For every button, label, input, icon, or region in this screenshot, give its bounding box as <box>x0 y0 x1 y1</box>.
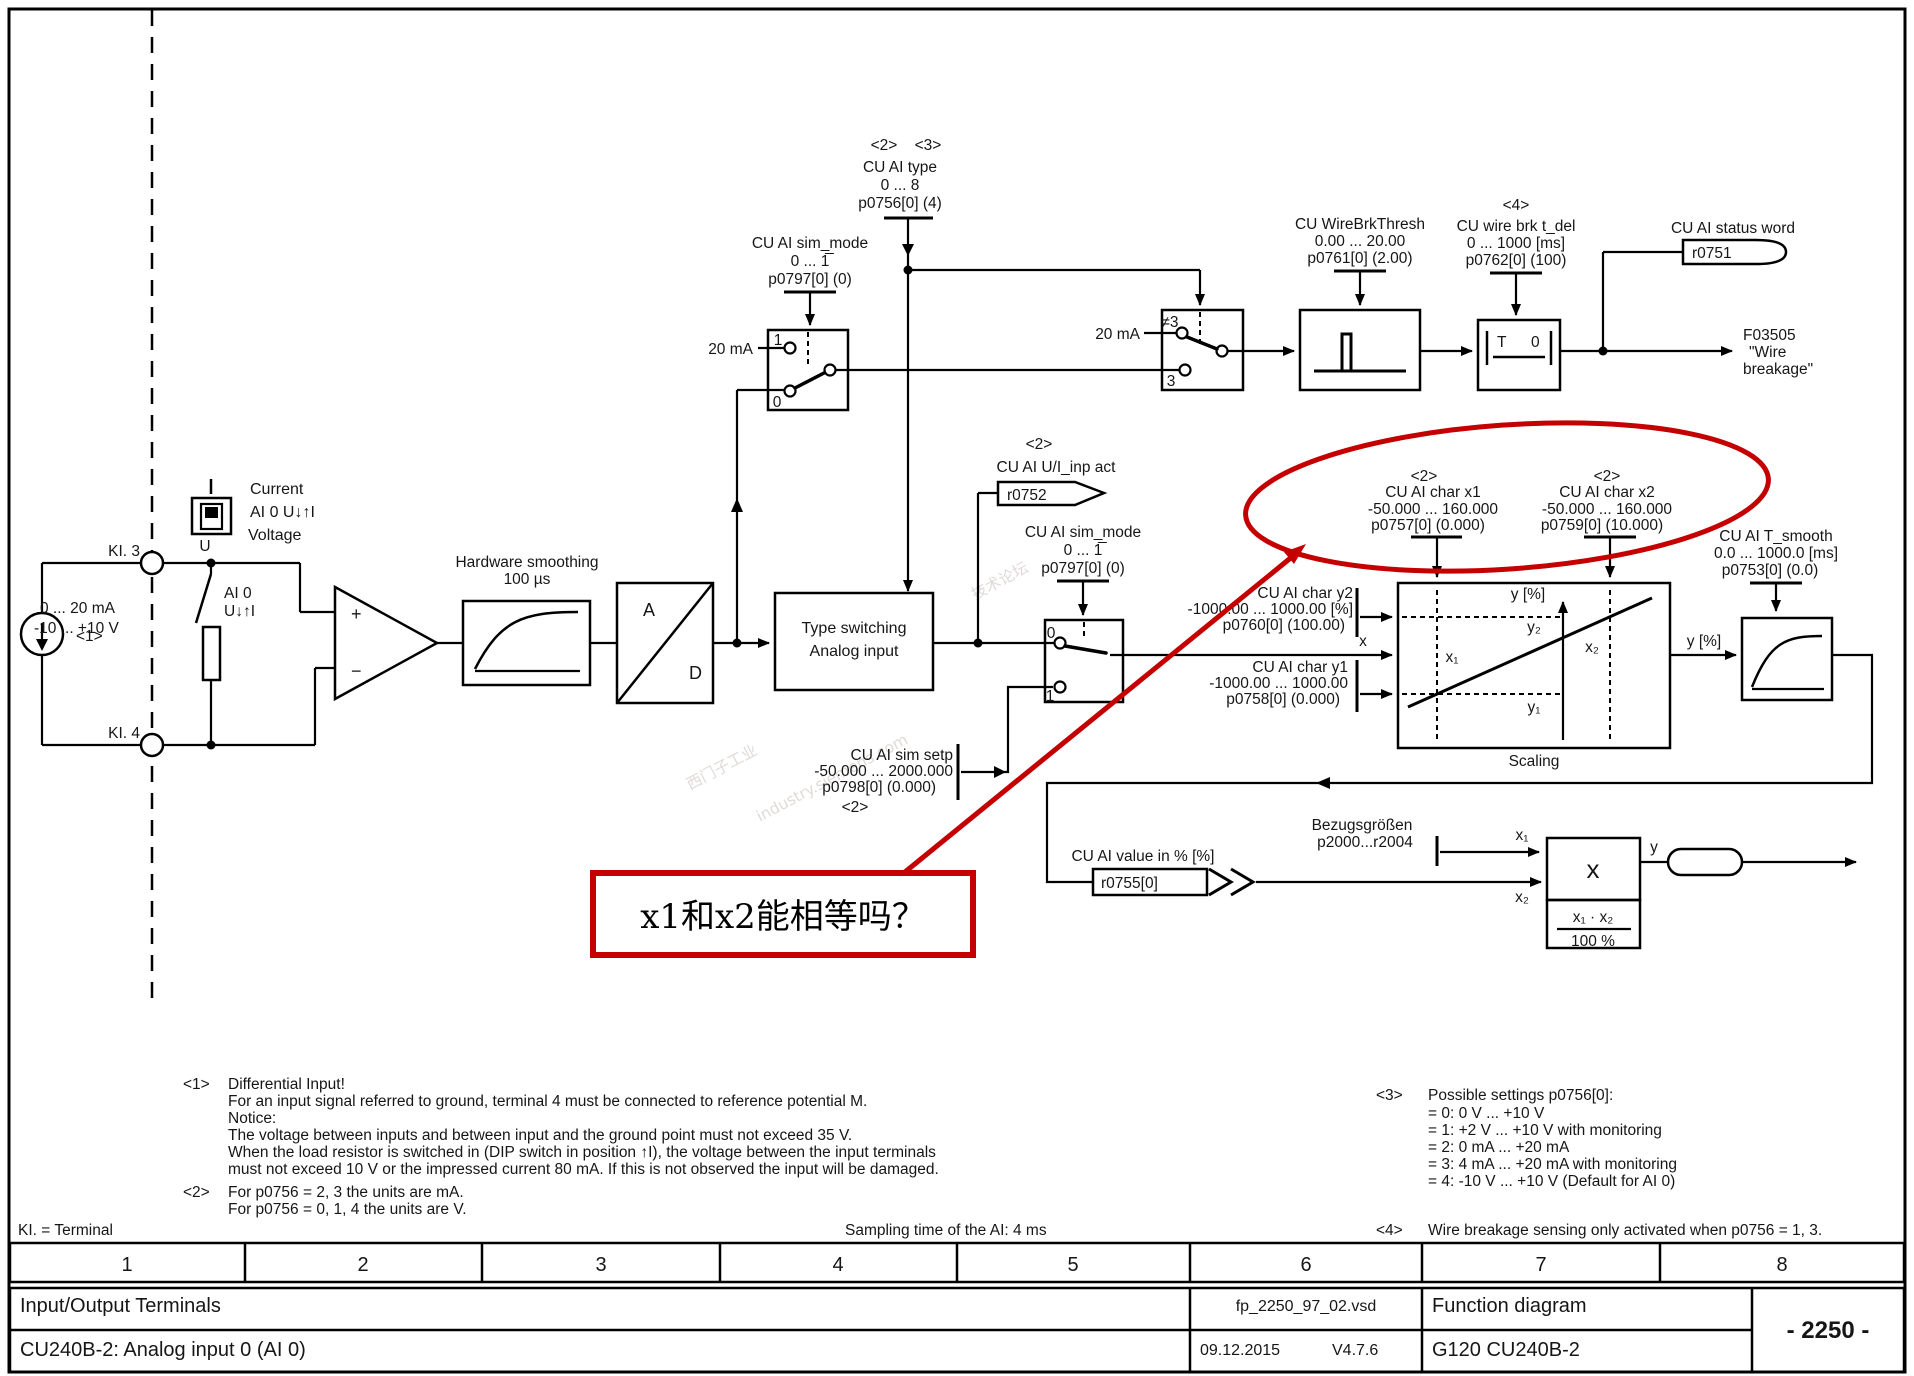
opamp-plus-label: + <box>351 604 362 624</box>
p0797b-name: CU AI sim_mode <box>1025 524 1141 541</box>
p0762-name: CU wire brk t_del <box>1457 218 1576 235</box>
switch-label-2: U↓↑I <box>224 603 255 620</box>
doc-title: Input/Output Terminals <box>20 1295 221 1317</box>
p0756-name: CU AI type <box>863 159 937 176</box>
load-switch-icon <box>196 574 211 623</box>
hardware-smoothing-block: Hardware smoothing 100 µs <box>455 554 617 685</box>
multiplier-x-label: x <box>1587 854 1600 884</box>
p0753-range: 0.0 ... 1000.0 [ms] <box>1714 545 1838 562</box>
fn1-line6: must not exceed 10 V or the impressed cu… <box>228 1161 939 1178</box>
file-name: fp_2250_97_02.vsd <box>1236 1298 1377 1315</box>
opamp-minus-label: − <box>351 661 362 681</box>
param-p0757: <2> CU AI char x1 -50.000 ... 160.000 p0… <box>1368 468 1499 577</box>
p0760-name: CU AI char y2 <box>1257 585 1353 602</box>
selector1-input1-label: 1 <box>774 332 783 349</box>
scaling-x-input-label: x <box>1359 633 1367 650</box>
p0762-value: p0762[0] (100) <box>1466 252 1567 269</box>
current-label: Current <box>250 481 304 498</box>
scaling-block: y [%] y₂ y₁ x₁ x₂ Scaling x <box>1359 583 1670 770</box>
simsel-0-label: 0 <box>1047 625 1056 642</box>
r0751-label: CU AI status word <box>1671 220 1795 237</box>
footnote-ref-4: <4> <box>1503 197 1530 214</box>
value-percent-path: CU AI value in % [%] r0755[0] <box>1047 655 1872 895</box>
highlight-ellipse <box>1241 407 1774 587</box>
tdel-0-label: 0 <box>1531 334 1540 351</box>
column-header-7: 7 <box>1535 1254 1546 1276</box>
switch-label-1: AI 0 <box>224 585 252 602</box>
fn3-line1: = 0: 0 V ... +10 V <box>1428 1105 1545 1122</box>
mult-x1-label: x₁ <box>1516 827 1529 844</box>
current-range-label: 0 ... 20 mA <box>40 600 116 617</box>
fn4-marker: <4> <box>1376 1222 1403 1239</box>
selector-label: AI 0 U↓↑I <box>250 504 315 521</box>
p0758-range: -1000.00 ... 1000.00 <box>1209 675 1348 692</box>
footnote-ref-2e: <2> <box>1594 468 1621 485</box>
fn1-line3: Notice: <box>228 1110 276 1127</box>
p0761-value: p0761[0] (2.00) <box>1307 250 1412 267</box>
p0797b-value: p0797[0] (0) <box>1041 560 1125 577</box>
output-y-label: y <box>1650 839 1658 856</box>
r0751-id: r0751 <box>1692 245 1732 262</box>
hw-smoothing-label-1: Hardware smoothing <box>455 554 598 571</box>
p0757-name: CU AI char x1 <box>1385 484 1481 501</box>
column-header-3: 3 <box>595 1254 606 1276</box>
opamp-block: + − <box>335 587 463 699</box>
simsel-lever-icon <box>1065 646 1106 653</box>
fn3-marker: <3> <box>1376 1087 1403 1104</box>
fn1-line4: The voltage between inputs and between i… <box>228 1127 852 1144</box>
terminal-3-label: KI. 3 <box>108 543 140 560</box>
ad-d-label: D <box>689 663 702 683</box>
annotation-arrow <box>905 556 1293 872</box>
fn3-line2: = 1: +2 V ... +10 V with monitoring <box>1428 1122 1662 1139</box>
r0755-id: r0755[0] <box>1101 875 1158 892</box>
param-p0753-smoothing: CU AI T_smooth 0.0 ... 1000.0 [ms] p0753… <box>1670 528 1838 700</box>
column-header-2: 2 <box>357 1254 368 1276</box>
fn1-marker: <1> <box>183 1076 210 1093</box>
param-p0797-mid: CU AI sim_mode 0 ... 1̅ p0797[0] (0) <box>1025 524 1141 615</box>
dip-u-label: U <box>199 538 210 555</box>
title-block: 1 2 3 4 5 6 7 8 Input/Output Terminals f… <box>10 1243 1904 1372</box>
hw-smoothing-label-2: 100 µs <box>504 571 551 588</box>
sim-20ma-label: 20 mA <box>708 341 753 358</box>
doc-kind: Function diagram <box>1432 1295 1587 1317</box>
p0760-range: -1000.00 ... 1000.00 [%] <box>1188 601 1353 618</box>
p0758-value: p0758[0] (0.000) <box>1226 691 1340 708</box>
column-header-4: 4 <box>832 1254 843 1276</box>
doc-version: V4.7.6 <box>1332 1342 1378 1359</box>
p0756-value: p0756[0] (4) <box>858 195 942 212</box>
type-switching-label-1: Type switching <box>802 620 907 637</box>
function-diagram-page: 西门子工业 industry.siemens.com 技术论坛 U KI. 3 … <box>0 0 1914 1376</box>
voltage-range-label: -10 ... +10 V <box>34 620 120 637</box>
param-p0760: CU AI char y2 -1000.00 ... 1000.00 [%] p… <box>1188 585 1392 637</box>
param-p0756: <2> <3> CU AI type 0 ... 8 p0756[0] (4) <box>858 137 1200 591</box>
column-header-1: 1 <box>121 1254 132 1276</box>
param-p0761-threshold: CU WireBrkThresh 0.00 ... 20.00 p0761[0]… <box>1295 216 1472 390</box>
status-word-connector: CU AI status word r0751 F03505 "Wire bre… <box>1603 220 1813 378</box>
fault-text-1: "Wire <box>1749 344 1786 361</box>
watermark-text: 西门子工业 <box>683 741 760 793</box>
param-p0797-top: CU AI sim_mode 0 ... 1̅ p0797[0] (0) <box>752 235 868 325</box>
p0798-value: p0798[0] (0.000) <box>822 779 936 796</box>
fn2-line2: For p0756 = 0, 1, 4 the units are V. <box>228 1201 467 1218</box>
p0753-value: p0753[0] (0.0) <box>1722 562 1819 579</box>
p0798-name: CU AI sim setp <box>851 747 954 764</box>
p0753-name: CU AI T_smooth <box>1719 528 1832 545</box>
question-text: x1和x2能相等吗？ <box>640 897 926 937</box>
p0757-value: p0757[0] (0.000) <box>1371 517 1485 534</box>
r0752-id: r0752 <box>1007 487 1047 504</box>
selector1-input0-label: 0 <box>773 394 782 411</box>
r0752-label: CU AI U/I_inp act <box>997 459 1117 476</box>
p0758-name: CU AI char y1 <box>1252 659 1348 676</box>
p0757-range: -50.000 ... 160.000 <box>1368 501 1499 518</box>
column-header-5: 5 <box>1067 1254 1078 1276</box>
mult-x2-label: x₂ <box>1515 889 1529 906</box>
formula-denominator: 100 % <box>1571 933 1615 950</box>
fn1-line2: For an input signal referred to ground, … <box>228 1093 867 1110</box>
selector2-3-label: 3 <box>1167 373 1176 390</box>
reference-scaling: Bezugsgrößen p2000...r2004 x₁ x₂ x x₁ · … <box>1312 817 1856 950</box>
fn1-line1: Differential Input! <box>228 1076 345 1093</box>
p0797-value: p0797[0] (0) <box>768 271 852 288</box>
fn4-line: Wire breakage sensing only activated whe… <box>1428 1222 1822 1239</box>
terminal-4-label: KI. 4 <box>108 725 140 742</box>
p0760-value: p0760[0] (100.00) <box>1223 617 1345 634</box>
main-signal-wires <box>713 390 1054 648</box>
param-p0798: CU AI sim setp -50.000 ... 2000.000 p079… <box>814 687 1053 816</box>
scaling-y2-label: y₂ <box>1527 619 1541 636</box>
tsmooth-curve-icon <box>1752 636 1822 687</box>
fn1-line5: When the load resistor is switched in (D… <box>228 1144 936 1161</box>
voltage-label: Voltage <box>248 527 301 544</box>
scaling-ypct-label: y [%] <box>1511 586 1545 603</box>
footnotes: <1> Differential Input! For an input sig… <box>18 1076 1822 1239</box>
fn3-line4: = 3: 4 mA ... +20 mA with monitoring <box>1428 1156 1677 1173</box>
param-p0759: <2> CU AI char x2 -50.000 ... 160.000 p0… <box>1541 468 1673 577</box>
fn3-line0: Possible settings p0756[0]: <box>1428 1087 1613 1104</box>
bico-output-connector-icon <box>1668 849 1742 875</box>
p2000-name: Bezugsgrößen <box>1312 817 1413 834</box>
terminal-4-icon <box>141 734 163 756</box>
p0761-range: 0.00 ... 20.00 <box>1315 233 1406 250</box>
resistor-icon <box>203 627 220 680</box>
simsel-1-label: 1 <box>1046 688 1055 705</box>
ad-converter-block: A D <box>617 583 713 703</box>
doc-date: 09.12.2015 <box>1200 1342 1280 1359</box>
terminal-legend: KI. = Terminal <box>18 1222 113 1239</box>
scaling-x1-label: x₁ <box>1446 649 1459 666</box>
wirebreak-20ma-label: 20 mA <box>1095 326 1140 343</box>
threshold-pulse-icon <box>1342 334 1351 371</box>
selector2-lever-icon <box>1187 337 1217 349</box>
p2000-value: p2000...r2004 <box>1317 834 1413 851</box>
page-number: - 2250 - <box>1787 1317 1870 1344</box>
diagram-canvas: 西门子工业 industry.siemens.com 技术论坛 U KI. 3 … <box>0 0 1914 1376</box>
formula-numerator: x₁ · x₂ <box>1573 909 1614 926</box>
type-switching-label-2: Analog input <box>810 643 900 660</box>
input-terminal-circuit: U KI. 3 KI. 4 <1> 0 ... 20 mA -10 ... +1… <box>21 479 335 756</box>
footnote-ref-2d: <2> <box>1411 468 1438 485</box>
p0798-range: -50.000 ... 2000.000 <box>814 763 953 780</box>
scaling-caption: Scaling <box>1509 753 1560 770</box>
fn3-line5: = 4: -10 V ... +10 V (Default for AI 0) <box>1428 1173 1675 1190</box>
p0759-range: -50.000 ... 160.000 <box>1542 501 1673 518</box>
fault-code: F03505 <box>1743 327 1796 344</box>
fault-text-2: breakage" <box>1743 361 1813 378</box>
p0797-name: CU AI sim_mode <box>752 235 868 252</box>
terminal-3-icon <box>141 552 163 574</box>
p0756-range: 0 ... 8 <box>881 177 920 194</box>
footnote-ref-2c: <2> <box>842 799 869 816</box>
r0755-label: CU AI value in % [%] <box>1071 848 1214 865</box>
r0755-chevron-icon <box>1209 869 1231 895</box>
column-header-6: 6 <box>1300 1254 1311 1276</box>
fn2-marker: <2> <box>183 1184 210 1201</box>
p0797b-range: 0 ... 1̅ <box>1064 542 1108 559</box>
param-p0758: CU AI char y1 -1000.00 ... 1000.00 p0758… <box>1209 659 1392 712</box>
p0797-range: 0 ... 1̅ <box>791 253 835 270</box>
footnote-ref-2: <2> <box>871 137 898 154</box>
product-name: G120 CU240B-2 <box>1432 1339 1580 1361</box>
doc-subtitle: CU240B-2: Analog input 0 (AI 0) <box>20 1339 306 1361</box>
tdel-t-label: T <box>1497 334 1507 351</box>
smoothing-curve-icon <box>475 612 578 669</box>
p0761-name: CU WireBrkThresh <box>1295 216 1425 233</box>
selector1-lever-icon <box>795 373 824 388</box>
wirebreak-selector-2: ≠3 3 20 mA <box>1095 310 1294 390</box>
scaling-x2-label: x₂ <box>1585 639 1599 656</box>
p0762-range: 0 ... 1000 [ms] <box>1467 235 1565 252</box>
sampling-time-note: Sampling time of the AI: 4 ms <box>845 1222 1047 1239</box>
ypct-output-label: y [%] <box>1687 633 1721 650</box>
selector2-ne3-label: ≠3 <box>1161 314 1178 331</box>
footnote-ref-3: <3> <box>915 137 942 154</box>
ad-a-label: A <box>643 600 655 620</box>
fn3-line3: = 2: 0 mA ... +20 mA <box>1428 1139 1570 1156</box>
footnote-ref-2b: <2> <box>1026 436 1053 453</box>
p0759-name: CU AI char x2 <box>1559 484 1655 501</box>
scaling-y1-label: y₁ <box>1528 699 1541 716</box>
column-header-8: 8 <box>1776 1254 1787 1276</box>
fn2-line1: For p0756 = 2, 3 the units are mA. <box>228 1184 464 1201</box>
p0759-value: p0759[0] (10.000) <box>1541 517 1663 534</box>
type-switching-block: Type switching Analog input <box>775 593 933 690</box>
